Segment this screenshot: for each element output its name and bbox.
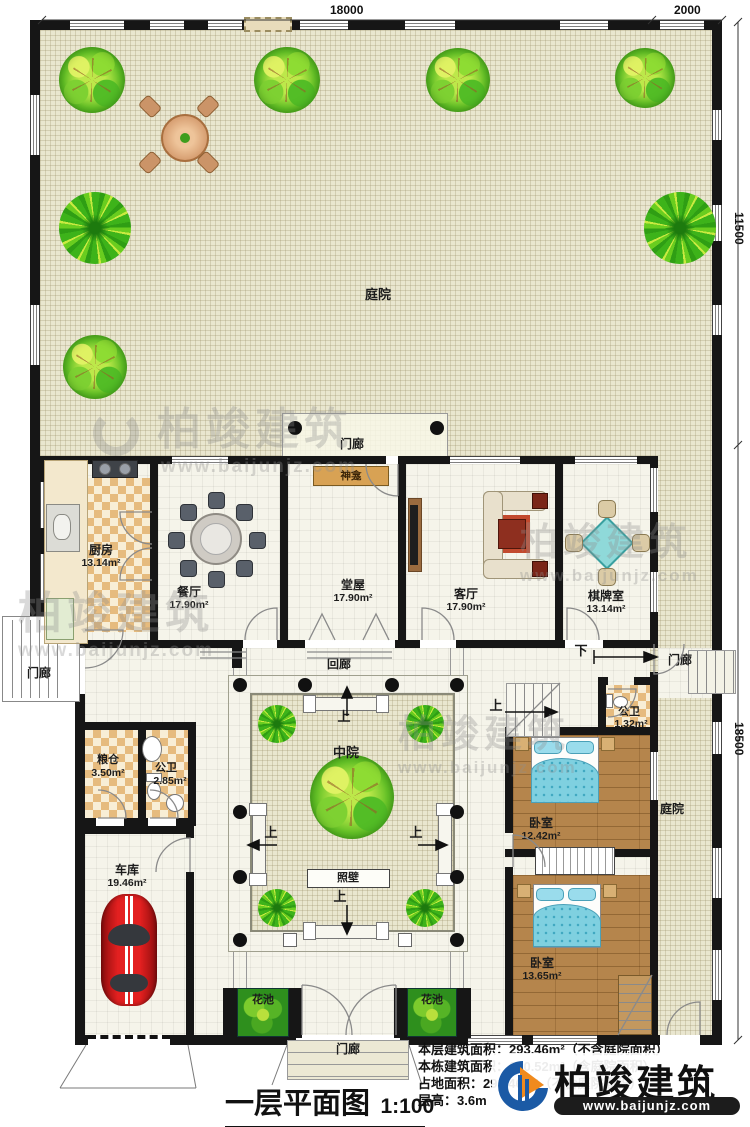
label-bedroom2-area: 13.65m² (522, 971, 561, 982)
label-kitchen-area: 13.14m² (81, 558, 120, 569)
window (650, 468, 658, 512)
pillow (536, 888, 564, 901)
wall (598, 677, 606, 735)
tree (59, 47, 125, 113)
label-courtyard-top: 庭院 (365, 288, 391, 301)
window (660, 20, 704, 30)
midcourt-step-left (252, 812, 266, 877)
wall (188, 722, 196, 826)
label-bedroom1: 卧室 (529, 817, 553, 829)
label-bath-left: 公卫 (155, 763, 177, 774)
door-gap (386, 456, 398, 464)
tv (410, 505, 418, 565)
chess-chair (632, 534, 650, 552)
porch-top (282, 413, 448, 462)
dim-11500: 11500 (732, 212, 746, 245)
palm-tree (59, 192, 131, 264)
brand-logo-icon (494, 1055, 552, 1117)
fridge (46, 598, 74, 640)
garage-door-dashed (88, 1035, 170, 1045)
label-up: 上 (264, 826, 277, 839)
wall (505, 867, 513, 1035)
label-granary-area: 3.50m² (91, 768, 124, 779)
label-flower-pool: 花池 (252, 995, 274, 1006)
brand-url: www.baijunjz.com (554, 1097, 740, 1115)
wall (75, 694, 85, 1035)
label-up: 上 (337, 710, 350, 723)
door-gap (243, 640, 277, 648)
wall (40, 20, 722, 30)
wall (505, 727, 513, 833)
nightstand (515, 737, 529, 751)
label-bedroom2: 卧室 (530, 957, 554, 969)
pool-post (223, 988, 237, 1038)
toilet-tank (606, 694, 613, 708)
sink-basin (53, 514, 71, 540)
courtyard-right-floor (650, 460, 712, 1035)
wall (505, 849, 535, 857)
label-flower-pool: 花池 (421, 995, 443, 1006)
label-porch-topright: 门廊 (668, 654, 692, 666)
stairs-up (506, 683, 560, 737)
car-windshield (108, 924, 150, 946)
label-bath-right: 公卫 (618, 707, 640, 718)
label-dining: 餐厅 (177, 586, 201, 598)
step-post (249, 873, 267, 886)
floor-plan: 庭院 门廊 神龛 厨房 13.14m² 餐厅 17.90m² 堂屋 17.90m… (0, 0, 750, 1127)
wall (186, 872, 194, 1035)
side-table (532, 493, 548, 509)
label-corridor: 回廊 (327, 658, 351, 670)
dim-2000: 2000 (674, 3, 701, 17)
dining-chair (180, 504, 197, 521)
wall (398, 456, 406, 648)
pillow (568, 888, 596, 901)
railing (450, 648, 464, 676)
bed2-blanket (533, 904, 601, 947)
column (233, 805, 247, 819)
label-chess: 棋牌室 (588, 590, 624, 602)
label-living-area: 17.90m² (446, 602, 485, 613)
palm-tree (406, 889, 444, 927)
pool-post (457, 988, 471, 1038)
label-courtyard-right: 庭院 (660, 803, 684, 815)
brand-logo-block: 柏竣建筑 www.baijunjz.com (492, 1053, 748, 1119)
column (450, 870, 464, 884)
label-hall-area: 17.90m² (333, 593, 372, 604)
step-post (376, 695, 389, 713)
palm-tree (644, 192, 716, 264)
column (450, 678, 464, 692)
palm-tree (258, 889, 296, 927)
dining-chair (180, 560, 197, 577)
car (101, 894, 157, 1006)
window (712, 950, 722, 1000)
porch-topright-steps (688, 650, 736, 694)
label-chess-area: 13.14m² (586, 604, 625, 615)
window (405, 20, 455, 30)
window (208, 20, 242, 30)
door-gap (420, 640, 456, 648)
dining-chair (168, 532, 185, 549)
door-gap (305, 640, 395, 648)
nightstand (517, 884, 531, 898)
sink (142, 736, 162, 762)
chess-chair (598, 568, 616, 586)
dining-table-top (200, 523, 232, 555)
dining-chair (208, 571, 225, 588)
column (450, 805, 464, 819)
window (712, 722, 722, 754)
palm-tree (406, 705, 444, 743)
column (450, 933, 464, 947)
step-post (376, 922, 389, 940)
pillow (566, 741, 594, 754)
label-screen-wall: 照壁 (337, 873, 359, 884)
plan-title-block: 一层平面图 1:100 (225, 1080, 434, 1127)
door-gap (96, 818, 124, 826)
column-base (398, 933, 412, 947)
window (450, 456, 520, 464)
wardrobe (535, 847, 615, 875)
wall (280, 456, 288, 648)
door-gap (148, 818, 176, 826)
window (30, 95, 40, 155)
midcourt-tree (310, 755, 394, 839)
dim-18000: 18000 (330, 3, 363, 17)
dining-chair (236, 504, 253, 521)
label-porch-bottom: 门廊 (336, 1043, 360, 1055)
wall (138, 722, 146, 826)
tree (254, 47, 320, 113)
wall (150, 456, 158, 648)
label-garage: 车库 (115, 864, 139, 876)
pool-post (289, 988, 302, 1038)
label-garage-area: 19.46m² (107, 878, 146, 889)
midcourt-step-bottom (312, 925, 380, 939)
label-bath-left-area: 2.85m² (153, 776, 186, 787)
nightstand (601, 737, 615, 751)
label-living: 客厅 (454, 588, 478, 600)
step-post (303, 922, 316, 940)
tree (426, 48, 490, 112)
wall (186, 834, 194, 838)
coffee-table (498, 519, 526, 549)
label-porch-top: 门廊 (340, 438, 364, 450)
window (150, 20, 184, 30)
label-up: 上 (333, 890, 346, 903)
wall (85, 826, 194, 834)
dining-chair (208, 492, 225, 509)
label-midcourt: 中院 (333, 746, 359, 759)
column (233, 933, 247, 947)
gate-top (244, 17, 292, 32)
plan-scale: 1:100 (380, 1095, 434, 1118)
label-hall: 堂屋 (341, 579, 365, 591)
pool-post (394, 988, 407, 1038)
nightstand (603, 884, 617, 898)
window (560, 20, 608, 30)
column (385, 678, 399, 692)
window (575, 456, 637, 464)
chess-chair (598, 500, 616, 518)
table-plant (180, 133, 190, 143)
label-bedroom1-area: 12.42m² (521, 831, 560, 842)
column (233, 678, 247, 692)
label-bath-right-area: 1.32m² (614, 719, 647, 730)
chess-chair (565, 534, 583, 552)
label-down: 下 (574, 644, 587, 657)
burner (119, 463, 131, 475)
step-post (303, 695, 316, 713)
label-dining-area: 17.90m² (169, 600, 208, 611)
palm-tree (258, 705, 296, 743)
label-granary: 粮仓 (97, 755, 119, 766)
step-post (249, 803, 267, 816)
label-shrine: 神龛 (341, 471, 362, 482)
courtyard-top-floor (40, 30, 712, 460)
column (233, 870, 247, 884)
bed1-blanket (531, 758, 599, 803)
tree (63, 335, 127, 399)
hall-floor (288, 464, 398, 640)
wall (555, 456, 563, 648)
tree (615, 48, 675, 108)
window (650, 572, 658, 612)
column-base (283, 933, 297, 947)
label-up-stairs: 上 (489, 699, 502, 712)
window (30, 305, 40, 365)
side-table (532, 561, 548, 577)
dining-chair (249, 532, 266, 549)
column (298, 678, 312, 692)
wall (634, 677, 658, 685)
window (712, 110, 722, 140)
washer (166, 794, 184, 812)
porch-column (288, 421, 302, 435)
label-up: 上 (409, 826, 422, 839)
wall (232, 648, 242, 668)
midcourt-step-right (438, 812, 452, 877)
pillow (534, 741, 562, 754)
dining-chair (236, 560, 253, 577)
window (70, 20, 124, 30)
window (712, 305, 722, 335)
wall (598, 677, 608, 685)
label-porch-left: 门廊 (27, 667, 51, 679)
window (172, 456, 228, 464)
porch-column (430, 421, 444, 435)
burner (99, 463, 111, 475)
window (300, 20, 348, 30)
dim-18500: 18500 (732, 722, 746, 755)
stairs-bedroom2 (618, 975, 652, 1035)
plan-title: 一层平面图 (225, 1088, 370, 1120)
label-kitchen: 厨房 (89, 544, 113, 556)
window (650, 752, 658, 800)
window (712, 848, 722, 898)
car-rear-window (110, 974, 148, 992)
